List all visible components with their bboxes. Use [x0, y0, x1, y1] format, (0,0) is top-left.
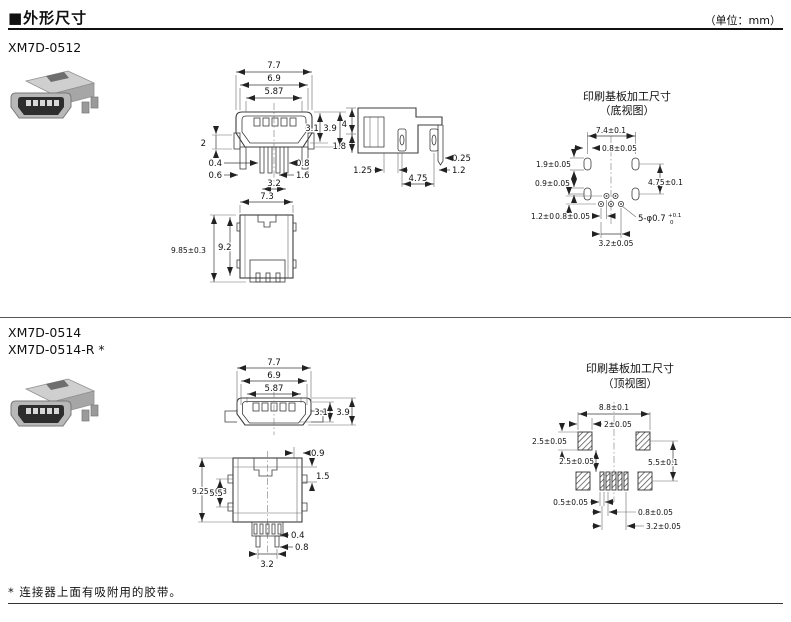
dim-label: 3.2±0.05: [646, 522, 681, 531]
dim-label: 9.85±0.3: [171, 246, 206, 255]
dim-label: 6.9: [267, 74, 281, 84]
dim-label: 7.7: [267, 61, 281, 71]
dim-label: 5.87: [265, 384, 284, 394]
top-dims-0514: 0.9 1.5 9.25±0.3 5.5 0.4 0.8: [192, 447, 330, 570]
pcb-dims-0514: 8.8±0.1 2±0.05 2.5±0.05 2.5±0.05 5.5±0.1…: [532, 403, 681, 531]
dim-label: 0.4: [208, 159, 222, 169]
dim-label: 3.2: [260, 560, 274, 570]
bottom-dims-0512: 9.85±0.3 9.2: [171, 215, 246, 282]
dim-label: 3.1: [305, 124, 319, 134]
connector-photo-0514: [6, 374, 102, 440]
front-view-0514: [225, 391, 323, 435]
dim-label: 2±0.05: [604, 420, 632, 429]
dim-label: 3.2: [267, 179, 281, 189]
pcb-view-label: （底视图）: [600, 103, 655, 117]
model-label-0514r: XM7D-0514-R *: [8, 342, 105, 357]
pcb-title: 印刷基板加工尺寸: [586, 361, 674, 375]
pcb-drawing-0512: 印刷基板加工尺寸 （底视图） 7.4±0.1 0.8±0.05: [530, 88, 791, 255]
drawing-0512: 7.7 6.9 5.87 3.1 3.9 2: [170, 55, 505, 310]
dim-label: 5.5±0.1: [648, 458, 678, 467]
dim-label: 0.5±0.05: [553, 498, 588, 507]
pcb-slots: [584, 158, 639, 200]
dim-label: 0.6: [208, 171, 222, 181]
model-label-0514: XM7D-0514: [8, 325, 81, 340]
hole-callout: 5-φ0.7: [638, 214, 666, 224]
front-dims-0514: 7.7 6.9 5.87 3.1 3.9: [237, 358, 356, 425]
side-view-0512: [358, 108, 443, 165]
dim-label: 1.6: [296, 171, 310, 181]
page-title: ■外形尺寸: [8, 7, 87, 28]
dim-label: 4.75: [409, 174, 428, 184]
bottom-view-0512: [237, 215, 296, 282]
dim-label: 1.25: [353, 166, 372, 176]
side-dims-0512: 4 1.8 1.25 4.75 0.25 1.2: [332, 108, 470, 187]
dim-label: 7.3: [260, 192, 274, 202]
dim-label: 1.8: [332, 142, 346, 152]
dim-label: 2: [201, 139, 206, 149]
pcb-title: 印刷基板加工尺寸: [583, 89, 671, 103]
footer-rule: [8, 603, 783, 604]
dim-label: 0.8±0.05: [638, 508, 673, 517]
dim-label: 0.8±0.05: [555, 212, 590, 221]
dim-label: 6.9: [267, 371, 281, 381]
dim-label: 0.8±0.05: [602, 144, 637, 153]
pcb-dims-0512: 7.4±0.1 0.8±0.05 1.9±0.05 0.9±0.05 1.2±0…: [531, 126, 683, 248]
footnote: * 连接器上面有吸附用的胶带。: [8, 584, 182, 600]
dim-label: 9.2: [218, 243, 232, 253]
hole-tol-hi: +0.1: [668, 213, 681, 219]
dim-label: 7.7: [267, 358, 281, 368]
drawing-0514: 7.7 6.9 5.87 3.1 3.9: [190, 355, 410, 577]
dim-label: 4.75±0.1: [648, 178, 683, 187]
dim-label: 3.9: [323, 124, 337, 134]
front-dims-0512: 7.7 6.9 5.87 3.1 3.9 2: [201, 61, 346, 213]
dim-label: 2.5±0.05: [532, 437, 567, 446]
header-rule: [8, 28, 783, 30]
dim-label: 2.5±0.05: [559, 457, 594, 466]
unit-note: （单位：mm）: [705, 12, 781, 28]
datasheet-page: ■外形尺寸 （单位：mm） XM7D-0512: [0, 0, 791, 622]
model-label-0512: XM7D-0512: [8, 40, 81, 55]
connector-photo-0512: [6, 66, 102, 132]
section-divider: [0, 317, 791, 318]
dim-label: 0.9±0.05: [535, 179, 570, 188]
dim-label: 1.5: [316, 472, 330, 482]
pcb-drawing-0514: 印刷基板加工尺寸 （顶视图） 8.8±0.1 2±0.05: [530, 360, 791, 560]
dim-label: 3.2±0.05: [599, 239, 634, 248]
dim-label: 5.87: [265, 87, 284, 97]
dim-label: 0.25: [452, 154, 471, 164]
dim-label: 1.2: [452, 166, 466, 176]
dim-label: 1.9±0.05: [536, 160, 571, 169]
dim-label: 0.9: [311, 449, 325, 459]
dim-label: 0.8: [295, 543, 309, 553]
dim-label: 8.8±0.1: [599, 403, 629, 412]
dim-label: 0.4: [291, 531, 305, 541]
dim-label: 7.4±0.1: [596, 126, 626, 135]
dim-label: 3.1: [314, 408, 328, 418]
dim-label: 0.8: [296, 159, 310, 169]
dim-label: 5.5: [209, 489, 223, 499]
pcb-view-label: （顶视图）: [603, 376, 658, 390]
hole-tol-lo: 0: [670, 220, 674, 226]
dim-label: 3.9: [336, 408, 350, 418]
dim-label: 4: [342, 120, 347, 130]
